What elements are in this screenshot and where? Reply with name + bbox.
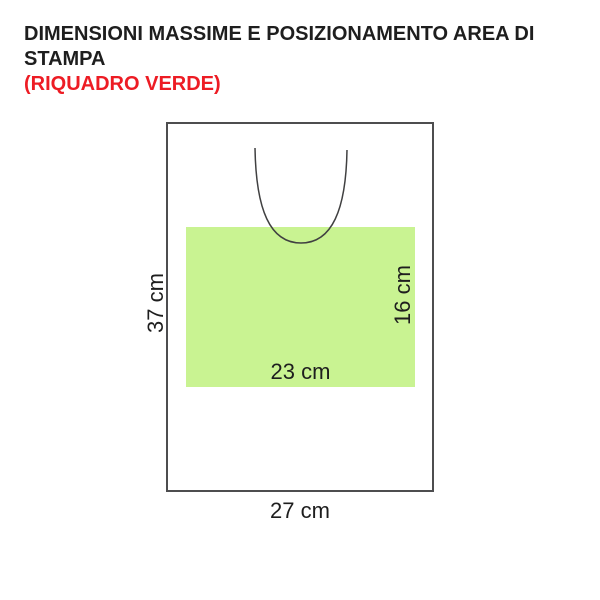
page-root: DIMENSIONI MASSIME E POSIZIONAMENTO AREA… <box>0 0 600 600</box>
title-line-1: DIMENSIONI MASSIME E POSIZIONAMENTO AREA… <box>24 22 590 72</box>
bag-width-label: 27 cm <box>166 498 434 524</box>
page-title: DIMENSIONI MASSIME E POSIZIONAMENTO AREA… <box>24 22 590 97</box>
bag-height-label: 37 cm <box>143 273 169 333</box>
print-area-width-label: 23 cm <box>186 359 415 385</box>
title-line-2: (RIQUADRO VERDE) <box>24 72 590 97</box>
print-area-height-label: 16 cm <box>390 265 416 325</box>
